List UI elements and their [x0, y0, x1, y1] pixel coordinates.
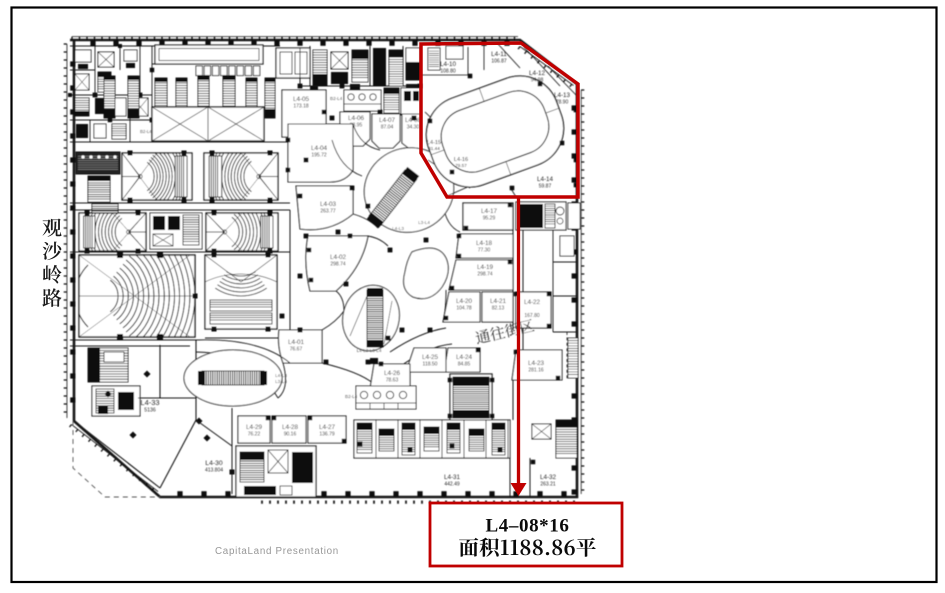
- svg-text:L4-26: L4-26: [384, 370, 401, 377]
- svg-text:L3-L4: L3-L4: [418, 220, 430, 225]
- svg-text:B2-L4: B2-L4: [330, 96, 343, 101]
- svg-text:L4-04: L4-04: [311, 145, 328, 152]
- svg-text:L4-L3: L4-L3: [275, 373, 287, 378]
- svg-text:L4-13: L4-13: [554, 92, 571, 99]
- svg-text:L3-L4: L3-L4: [275, 379, 287, 384]
- svg-text:104.78: 104.78: [456, 305, 472, 311]
- svg-text:L4-30: L4-30: [205, 460, 223, 467]
- svg-text:L4-32: L4-32: [540, 474, 557, 481]
- svg-text:L4-20: L4-20: [456, 298, 473, 305]
- svg-text:L4-18: L4-18: [476, 240, 493, 247]
- svg-text:L4-01: L4-01: [288, 339, 305, 346]
- svg-text:82.13: 82.13: [492, 305, 505, 311]
- svg-text:281.16: 281.16: [528, 367, 544, 373]
- svg-text:L4-05: L4-05: [293, 96, 310, 103]
- svg-text:L4-03: L4-03: [320, 201, 337, 208]
- svg-text:L4-02: L4-02: [330, 254, 347, 261]
- svg-text:136.79: 136.79: [319, 431, 335, 437]
- svg-text:L4–08*16: L4–08*16: [486, 516, 570, 537]
- svg-text:L4-12: L4-12: [529, 70, 546, 77]
- svg-text:195.72: 195.72: [311, 152, 327, 158]
- svg-text:87.04: 87.04: [381, 124, 394, 130]
- svg-text:118.50: 118.50: [423, 361, 438, 367]
- svg-text:84.85: 84.85: [458, 361, 471, 367]
- svg-text:CapitaLand Presentation: CapitaLand Presentation: [215, 546, 339, 557]
- svg-text:L4-07: L4-07: [379, 117, 396, 124]
- svg-text:90.16: 90.16: [284, 431, 297, 437]
- svg-text:108.80: 108.80: [440, 68, 456, 74]
- svg-text:263.21: 263.21: [540, 481, 556, 487]
- svg-text:B2-L4: B2-L4: [140, 129, 152, 134]
- svg-text:442.49: 442.49: [444, 481, 460, 487]
- svg-text:95.29: 95.29: [483, 215, 496, 221]
- svg-text:L4-33: L4-33: [140, 398, 159, 407]
- svg-text:81.44: 81.44: [428, 146, 440, 151]
- svg-text:76.22: 76.22: [248, 431, 261, 437]
- svg-text:L4-17: L4-17: [481, 208, 498, 215]
- svg-text:L4-24: L4-24: [456, 354, 473, 361]
- svg-text:76.67: 76.67: [290, 346, 303, 352]
- svg-text:L4-L3 L3-L4: L4-L3 L3-L4: [357, 348, 382, 353]
- svg-text:34.30: 34.30: [407, 124, 420, 130]
- svg-text:L4-06: L4-06: [348, 115, 365, 122]
- svg-text:167.80: 167.80: [524, 313, 540, 319]
- svg-text:78.90: 78.90: [556, 99, 569, 105]
- svg-text:413.804: 413.804: [205, 467, 223, 473]
- svg-text:L4-23: L4-23: [528, 360, 545, 367]
- svg-text:L4-27: L4-27: [319, 424, 336, 431]
- svg-text:L4-10: L4-10: [440, 61, 457, 68]
- svg-text:L4-14: L4-14: [537, 176, 554, 183]
- svg-text:94.98: 94.98: [531, 77, 544, 83]
- svg-text:173.18: 173.18: [293, 103, 309, 109]
- svg-text:106.87: 106.87: [491, 58, 507, 64]
- svg-text:L4-22: L4-22: [524, 299, 541, 306]
- svg-text:L4-21: L4-21: [490, 298, 507, 305]
- svg-text:77.30: 77.30: [478, 247, 491, 253]
- svg-text:L4-28: L4-28: [282, 424, 299, 431]
- svg-text:78.63: 78.63: [386, 377, 399, 383]
- svg-text:5136: 5136: [144, 408, 156, 414]
- svg-text:L4-11: L4-11: [491, 51, 507, 58]
- svg-text:298.74: 298.74: [330, 261, 346, 267]
- svg-text:L4-19: L4-19: [477, 264, 494, 271]
- svg-text:263.77: 263.77: [320, 208, 336, 214]
- svg-text:79.57: 79.57: [455, 163, 467, 168]
- svg-text:L4-L3: L4-L3: [392, 226, 404, 231]
- svg-text:L4-25: L4-25: [422, 354, 439, 361]
- svg-text:59.87: 59.87: [539, 183, 552, 189]
- svg-text:L4-29: L4-29: [246, 424, 263, 431]
- svg-text:298.74: 298.74: [477, 271, 493, 277]
- svg-text:L4-31: L4-31: [444, 474, 461, 481]
- svg-text:B2-L4: B2-L4: [345, 394, 358, 399]
